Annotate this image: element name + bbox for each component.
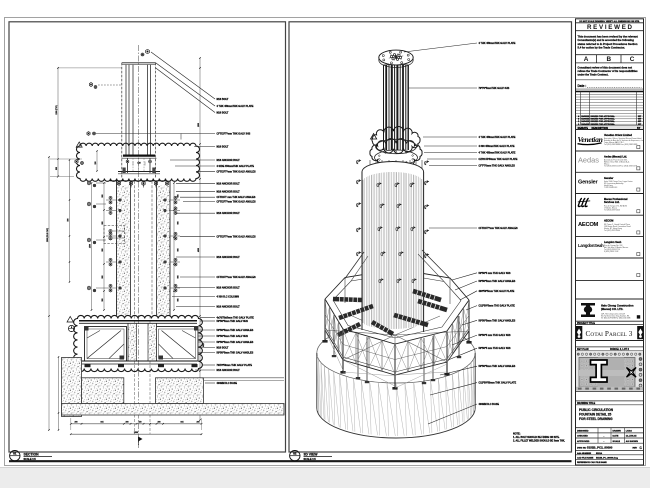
svg-text:Consultants(s) and is accorded: Consultants(s) and is accorded the follo… xyxy=(578,38,635,42)
svg-text:200: 200 xyxy=(75,422,78,424)
svg-text:CFT/CFT*mm THK GALV ANGLES: CFT/CFT*mm THK GALV ANGLES xyxy=(217,276,257,279)
svg-text:DRAWN: DRAWN xyxy=(613,430,622,433)
svg-text:DWG NO: DWG NO xyxy=(577,447,587,449)
svg-text:CFT/CFT mm THK GALV ANGLES: CFT/CFT mm THK GALV ANGLES xyxy=(217,196,256,199)
svg-text:29/05/15: 29/05/15 xyxy=(581,116,590,118)
svg-text:Aedas (Macau) Ltd.: Aedas (Macau) Ltd. xyxy=(604,156,627,159)
svg-text:CFT*70mm THK GALV ANGLES: CFT*70mm THK GALV ANGLES xyxy=(479,165,516,168)
svg-text:5.4 for action by the Trade Co: 5.4 for action by the Trade Contractor. xyxy=(578,46,626,50)
svg-text:400MM R.C BASE: 400MM R.C BASE xyxy=(217,382,238,385)
svg-text:M16 ANCHOR BOLT: M16 ANCHOR BOLT xyxy=(217,183,241,186)
svg-text:1. ALL BOLT SHOULD BE FIXING O: 1. ALL BOLT SHOULD BE FIXING ON SITE. xyxy=(513,436,560,439)
svg-text:300: 300 xyxy=(102,299,104,302)
svg-text:M16 BOLT: M16 BOLT xyxy=(217,112,229,115)
svg-text:M16 ANCHOR BOLT: M16 ANCHOR BOLT xyxy=(217,306,241,309)
svg-text:COTAI PARCEL 3: COTAI PARCEL 3 xyxy=(585,330,632,338)
svg-text:AECOM: AECOM xyxy=(604,220,613,223)
svg-text:M16 ANCHOR BOLT: M16 ANCHOR BOLT xyxy=(217,190,241,193)
svg-text:1-M: 1-M xyxy=(137,162,141,164)
svg-text:SCALE 1:5: SCALE 1:5 xyxy=(24,458,37,461)
svg-text:B: B xyxy=(606,56,611,63)
svg-text:CFT/CFT*mm THK GALV ANGLES: CFT/CFT*mm THK GALV ANGLES xyxy=(217,171,257,174)
svg-text:4 300 450mmTHK GALV PLATE: 4 300 450mmTHK GALV PLATE xyxy=(479,145,515,148)
svg-text:M16 ANCHOR BOLT: M16 ANCHOR BOLT xyxy=(217,256,241,259)
svg-text:PUBLIC CIRCULATION: PUBLIC CIRCULATION xyxy=(579,408,614,412)
svg-text:M16 ANCHOR BOLT: M16 ANCHOR BOLT xyxy=(217,287,241,290)
svg-text:M16 ANCHOR BOLT: M16 ANCHOR BOLT xyxy=(217,369,241,372)
svg-text:Hsin Chong Construction: Hsin Chong Construction xyxy=(601,304,634,308)
svg-text:M16 BOLT: M16 BOLT xyxy=(217,347,229,350)
svg-text:SCALE: SCALE xyxy=(613,440,621,443)
svg-text:A&A NUMBER: A&A NUMBER xyxy=(577,452,592,455)
svg-text:Venetian: Venetian xyxy=(578,135,603,144)
svg-text:This document has been revised: This document has been revised by the re… xyxy=(578,35,638,39)
svg-text:CFT/CFT*mm THK GALV ANGLES: CFT/CFT*mm THK GALV ANGLES xyxy=(217,201,257,204)
svg-text:ISSUED FOR APPROVAL: ISSUED FOR APPROVAL xyxy=(591,118,616,121)
svg-text:Aedas: Aedas xyxy=(578,156,599,165)
svg-text:2500: 2500 xyxy=(89,244,91,248)
svg-text:2500 (PILE CAP): 2500 (PILE CAP) xyxy=(46,228,49,242)
svg-text:Tel: (853) 2837 2623: Tel: (853) 2837 2623 xyxy=(604,209,620,211)
svg-text:300: 300 xyxy=(176,299,178,302)
svg-text:2588: 2588 xyxy=(134,432,138,434)
svg-text:500: 500 xyxy=(176,276,178,279)
svg-text:SECTION: SECTION xyxy=(24,452,40,456)
svg-text:500: 500 xyxy=(102,195,104,198)
svg-text:400MM R.C BASE: 400MM R.C BASE xyxy=(479,403,500,406)
svg-text:!: ! xyxy=(79,143,80,147)
svg-text:LangdonSeah: LangdonSeah xyxy=(578,243,604,248)
svg-text:C: C xyxy=(630,56,635,63)
svg-text:R E V I E W E D: R E V I E W E D xyxy=(587,24,633,31)
svg-text:M16 ANCHOR BOLT: M16 ANCHOR BOLT xyxy=(217,212,241,215)
svg-text:5152B_PC2_80090: 5152B_PC2_80090 xyxy=(587,446,613,450)
svg-text:Gensler: Gensler xyxy=(578,179,598,185)
svg-text:150: 150 xyxy=(95,162,97,165)
svg-text:50*50*5mm THK GALV ANGLES: 50*50*5mm THK GALV ANGLES xyxy=(217,341,254,344)
svg-text:24/04/15: 24/04/15 xyxy=(581,120,590,123)
svg-text:ISSUED FOR APPROVAL: ISSUED FOR APPROVAL xyxy=(591,115,616,118)
svg-text:500: 500 xyxy=(176,222,178,225)
svg-text:REV: REV xyxy=(633,448,638,450)
svg-text:A: A xyxy=(584,56,589,63)
svg-text:4 THK 450mmTHK GALV PLATE: 4 THK 450mmTHK GALV PLATE xyxy=(479,136,516,139)
svg-text:01: 01 xyxy=(13,451,17,455)
svg-text:DATE: DATE xyxy=(613,435,619,438)
svg-text:14-JUN-15: 14-JUN-15 xyxy=(626,435,637,438)
svg-text:APPROVED: APPROVED xyxy=(577,440,590,443)
svg-text:M16 BOLT: M16 BOLT xyxy=(217,146,229,149)
svg-text:DO NOT SCALE DRAWING. VERIFY A: DO NOT SCALE DRAWING. VERIFY ALL DIMENSI… xyxy=(579,20,640,23)
svg-text:CFT/CFT*mm THK GALV 3HS: CFT/CFT*mm THK GALV 3HS xyxy=(217,133,251,136)
svg-text:844: 844 xyxy=(101,421,104,424)
svg-text:02: 02 xyxy=(293,451,297,455)
svg-text:CFT/CFT*mm THK GALV ANGLES: CFT/CFT*mm THK GALV ANGLES xyxy=(217,236,257,239)
svg-text:150: 150 xyxy=(139,422,142,424)
svg-text:LHAO: LHAO xyxy=(626,430,632,433)
svg-text:Tel: (853) 2833 1113 Fax: (85: Tel: (853) 2833 1113 Fax: (853) 2833 157… xyxy=(604,166,637,168)
svg-text:1350 (TYP): 1350 (TYP) xyxy=(56,105,58,115)
svg-text:M16 BOLT: M16 BOLT xyxy=(217,98,229,101)
svg-text:500: 500 xyxy=(56,167,58,170)
svg-text:50*50*5mm THK GALV ANGLES: 50*50*5mm THK GALV ANGLES xyxy=(479,280,516,283)
svg-text:Tel: (852) 2579 8238 Fax: (85: Tel: (852) 2579 8238 Fax: (852) 2516 659… xyxy=(601,318,631,320)
svg-text:200: 200 xyxy=(197,422,200,424)
svg-text:2. ALL FILLET WELDED SHOULD BE: 2. ALL FILLET WELDED SHOULD BE 3mm THK. xyxy=(513,440,565,443)
svg-text:500: 500 xyxy=(176,249,178,252)
svg-text:50*50*5 mm THK GALV 3HS: 50*50*5 mm THK GALV 3HS xyxy=(479,334,511,337)
svg-text:5152A: 5152A xyxy=(596,452,603,455)
svg-text:200: 200 xyxy=(126,422,129,424)
svg-text:50*50*5mm THK GALV 3HS: 50*50*5mm THK GALV 3HS xyxy=(217,335,249,338)
svg-text:Tel: (852) 3922 9000: Tel: (852) 3922 9000 xyxy=(604,230,620,232)
svg-text:50*50*5mm THK GALV ANGLES: 50*50*5mm THK GALV ANGLES xyxy=(217,352,254,355)
svg-text:4 THK 450mmTHK GALV PLATE: 4 THK 450mmTHK GALV PLATE xyxy=(217,105,254,108)
svg-text:4500: 4500 xyxy=(197,248,200,252)
svg-text:Tel: (853) 2882 8888 Fax: (85: Tel: (853) 2882 8888 Fax: (853) 2882 888… xyxy=(604,144,637,146)
svg-text:REFERENCE CAD FILE NAME: REFERENCE CAD FILE NAME xyxy=(577,461,607,464)
svg-text:Date :: Date : xyxy=(578,84,587,88)
svg-text:CZP/CFP50mm THK GALV PLATE: CZP/CFP50mm THK GALV PLATE xyxy=(479,158,518,161)
svg-text:4 300 R.C COLUMN: 4 300 R.C COLUMN xyxy=(217,296,240,299)
svg-text:SCALE 1:5: SCALE 1:5 xyxy=(304,458,317,461)
svg-text:Consultant review of this docu: Consultant review of this document does … xyxy=(578,66,633,70)
svg-text:50*50*5 mm THK GALV 3HS: 50*50*5 mm THK GALV 3HS xyxy=(479,347,511,350)
svg-text:50*50*5mm THK GALV ANGLES: 50*50*5mm THK GALV ANGLES xyxy=(479,365,516,368)
svg-text:Gensler: Gensler xyxy=(604,177,613,180)
svg-text:(Macau) CO. LTD.: (Macau) CO. LTD. xyxy=(601,307,623,311)
svg-text:50*50*5mm THK GALV 3HS: 50*50*5mm THK GALV 3HS xyxy=(217,320,249,323)
svg-text:CAD FILE NAME: CAD FILE NAME xyxy=(577,456,594,459)
svg-text:F (853) 2833 1532: F (853) 2833 1532 xyxy=(604,251,618,253)
svg-text:4 THK 450mmTHK GALV PLATE: 4 THK 450mmTHK GALV PLATE xyxy=(479,42,516,45)
svg-text:M16 ANCHOR BOLT: M16 ANCHOR BOLT xyxy=(217,159,241,162)
svg-text:AECOM: AECOM xyxy=(578,222,599,228)
svg-text:C12*50*50mm THK GALV PLATE: C12*50*50mm THK GALV PLATE xyxy=(479,382,517,385)
svg-text:FOR STEEL DRAWING: FOR STEEL DRAWING xyxy=(579,417,613,421)
svg-text:3D VIEW: 3D VIEW xyxy=(304,452,319,456)
svg-text:1500: 1500 xyxy=(198,123,200,127)
svg-text:Venetian Orient Limited: Venetian Orient Limited xyxy=(604,134,632,137)
svg-text:CHECKED: CHECKED xyxy=(577,436,588,438)
svg-text:relieve the Trade Contractor o: relieve the Trade Contractor of its resp… xyxy=(578,69,639,73)
svg-text:50*50*5 mm THK GALV 3HS: 50*50*5 mm THK GALV 3HS xyxy=(479,272,511,275)
svg-text:500: 500 xyxy=(102,222,104,225)
svg-text:AS SHOWN: AS SHOWN xyxy=(626,440,638,443)
svg-text:NOTE:: NOTE: xyxy=(513,433,521,436)
svg-text:500: 500 xyxy=(102,276,104,279)
svg-text:under the Trade Contract.: under the Trade Contract. xyxy=(578,73,609,77)
svg-text:C12*50*5mm THK GALV PLATE: C12*50*5mm THK GALV PLATE xyxy=(479,305,516,308)
svg-text:DESIGNED: DESIGNED xyxy=(577,431,589,433)
svg-text:4 THK 450mmTHK GALV PLATE: 4 THK 450mmTHK GALV PLATE xyxy=(479,152,516,155)
svg-text:500: 500 xyxy=(67,219,69,222)
svg-text:500: 500 xyxy=(102,249,104,252)
svg-text:4 SIDE 450mmTHK GALV PLATE: 4 SIDE 450mmTHK GALV PLATE xyxy=(217,165,255,168)
svg-text:70*70*5mmTHK GALV 3HS: 70*70*5mmTHK GALV 3HS xyxy=(479,87,510,90)
svg-text:CFT/CFT*mm THK GALV ANGLES: CFT/CFT*mm THK GALV ANGLES xyxy=(479,227,519,230)
svg-text:844: 844 xyxy=(181,421,184,424)
svg-text:FOUNTAIN DETAIL 25: FOUNTAIN DETAIL 25 xyxy=(579,413,612,417)
svg-text:status referred to in Project: status referred to in Project Procedures… xyxy=(578,42,638,46)
svg-text:400*50*5mm THK GALV PLATE: 400*50*5mm THK GALV PLATE xyxy=(479,290,515,293)
svg-text:15/05/15: 15/05/15 xyxy=(581,119,590,121)
svg-text:50*50*5mm THK GALV ANGLES: 50*50*5mm THK GALV ANGLES xyxy=(217,329,254,332)
svg-text:70/70*50mm THK GALV PLATE: 70/70*50mm THK GALV PLATE xyxy=(217,364,253,367)
svg-text:50*50*5mm THK GALV ANGLES: 50*50*5mm THK GALV ANGLES xyxy=(479,319,516,322)
svg-text:200: 200 xyxy=(158,422,161,424)
svg-text:Services Ltd.: Services Ltd. xyxy=(604,201,620,204)
svg-text:ISSUED FOR APPROVAL: ISSUED FOR APPROVAL xyxy=(591,120,616,123)
svg-text:Langdon Seah: Langdon Seah xyxy=(604,241,622,244)
svg-text:T 852.2508.1013: T 852.2508.1013 xyxy=(604,187,617,189)
